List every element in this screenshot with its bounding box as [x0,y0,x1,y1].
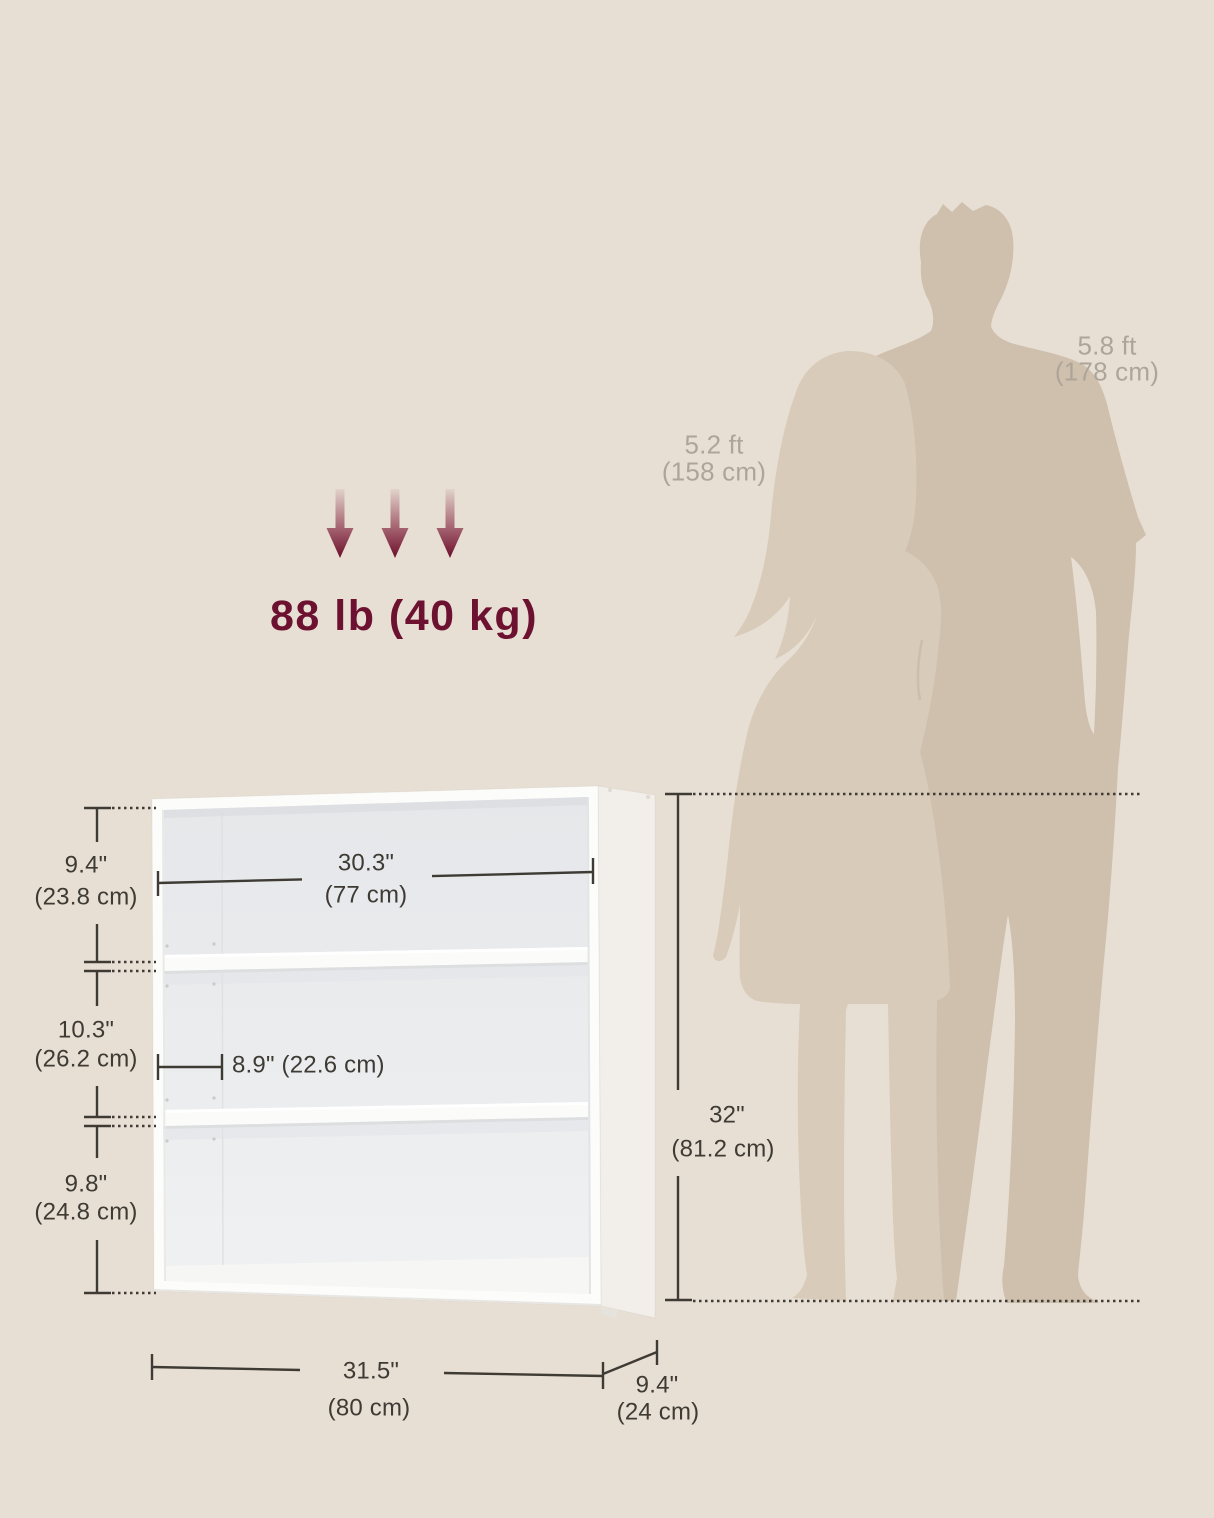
weight-arrows [327,489,464,558]
dim-bottom-compartment-cm: (24.8 cm) [34,1199,137,1228]
dim-overall-width-in: 31.5" [343,1358,399,1387]
down-arrow-icon [382,489,409,558]
dim-bottom-compartment-in: 9.8" [65,1171,108,1200]
dim-top-compartment-in: 9.4" [65,852,108,881]
dim-inner-width-cm: (77 cm) [325,882,408,911]
down-arrow-icon [437,489,464,558]
dim-overall-width-cm: (80 cm) [328,1395,411,1424]
weight-capacity-label: 88 lb (40 kg) [270,591,538,643]
dim-middle-compartment-cm: (26.2 cm) [34,1046,137,1075]
woman-height-cm: (158 cm) [662,456,766,487]
dim-overall-height-cm: (81.2 cm) [671,1136,774,1165]
dim-overall-depth-cm: (24 cm) [617,1399,700,1428]
diagram-scene [0,0,1214,1518]
bookshelf [152,786,655,1319]
dim-overall-depth-in: 9.4" [636,1372,679,1401]
dim-overall-height-in: 32" [709,1102,745,1131]
bookshelf-side-panel [598,786,655,1318]
dim-middle-compartment-in: 10.3" [58,1017,114,1046]
dim-inner-width-in: 30.3" [338,850,394,879]
dim-inner-depth: 8.9" (22.6 cm) [232,1052,385,1081]
dim-top-compartment-cm: (23.8 cm) [34,884,137,913]
man-height-cm: (178 cm) [1055,356,1159,387]
bookshelf-dimension-diagram: 88 lb (40 kg) 5.2 ft (158 cm) 5.8 ft (17… [0,0,1214,1518]
down-arrow-icon [327,489,354,558]
